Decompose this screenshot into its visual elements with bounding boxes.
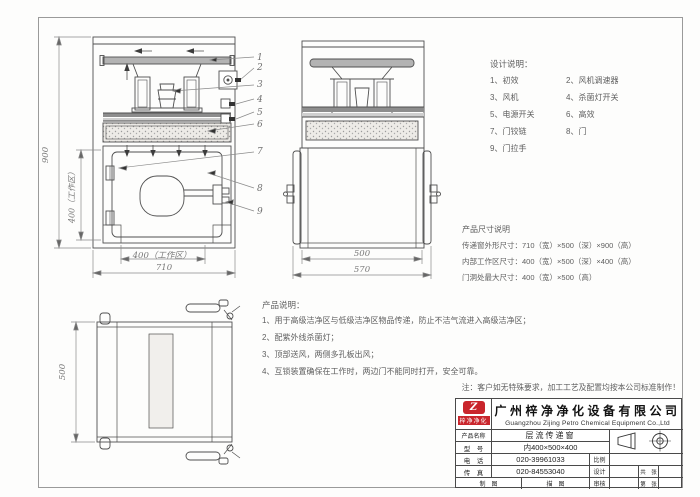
dim-front-height: 900 xyxy=(41,140,53,170)
projection-symbol xyxy=(610,430,682,452)
top-view-dimensions xyxy=(71,322,95,442)
company-cell: 广州梓净净化设备有限公司 Guangzhou Zijing Petro Chem… xyxy=(491,399,683,429)
callout-8: 8 xyxy=(257,184,263,194)
product-label: 产品名称 xyxy=(456,429,491,441)
product-note-line: 4、互锁装置确保在工作时，两边门不能同时打开，安全可靠。 xyxy=(262,368,530,385)
callout-4: 4 xyxy=(257,95,263,105)
product-notes-title: 产品说明： xyxy=(262,301,530,310)
callout-1: 1 xyxy=(257,53,263,63)
sheetno-label: 第 张 xyxy=(638,477,658,489)
side-view xyxy=(284,41,441,248)
product-notes: 产品说明： 1、用于高级洁净区与低级洁净区物品传递，防止不洁气流进入高级洁净区；… xyxy=(262,301,530,385)
engineering-drawing-sheet: 900 400（工作区） 400（工作区） 710 500 570 500 1 … xyxy=(0,0,700,497)
size-note-line: 传递窗外形尺寸：710（宽）×500（深）×900（高） xyxy=(462,242,636,258)
sheetno-value-empty xyxy=(658,477,683,489)
dim-front-inner-width: 400（工作区） xyxy=(112,249,212,261)
design-notes: 设计说明： 1、初效 3、风机 5、电源开关 7、门铰链 9、门拉手 2、风机调… xyxy=(490,60,618,162)
design-notes-left-column: 1、初效 3、风机 5、电源开关 7、门铰链 9、门拉手 xyxy=(490,77,566,162)
logo-text: 梓净净化 xyxy=(458,416,490,425)
top-view xyxy=(97,300,240,464)
sheets-label: 共 张 xyxy=(638,465,658,477)
title-block: Z 梓净净化 广州梓净净化设备有限公司 Guangzhou Zijing Pet… xyxy=(455,398,682,488)
scale-label: 比例 xyxy=(589,453,609,465)
dim-front-width: 710 xyxy=(134,263,194,273)
check-label: 审核 xyxy=(589,477,609,489)
product-value: 层流传递窗 xyxy=(491,429,609,441)
model-value: 内400×500×400 xyxy=(491,441,609,453)
check-value-empty xyxy=(609,477,638,489)
sheets-value-empty xyxy=(658,465,683,477)
product-note-line: 1、用于高级洁净区与低级洁净区物品传递，防止不洁气流进入高级洁净区； xyxy=(262,317,530,334)
size-notes-title: 产品尺寸说明 xyxy=(462,226,636,234)
dim-side-outer-width: 570 xyxy=(332,265,392,275)
callout-6: 6 xyxy=(257,120,263,130)
size-note-line: 门洞处最大尺寸：400（宽）×500（高） xyxy=(462,274,636,290)
design-note-item: 8、门 xyxy=(566,128,618,145)
callout-2: 2 xyxy=(257,63,263,73)
draft-label: 制 图 xyxy=(456,477,521,489)
footnote: 注：客户如无特殊要求，加工工艺及配置均按本公司标准制作！ xyxy=(452,384,680,392)
model-label: 型 号 xyxy=(456,441,491,453)
logo-glyph: Z xyxy=(470,402,477,413)
design-value-empty xyxy=(609,465,638,477)
product-note-line: 2、配紫外线杀菌灯； xyxy=(262,334,530,351)
tel-value: 020-39961033 xyxy=(491,453,589,465)
design-note-item: 4、杀菌灯开关 xyxy=(566,94,618,111)
trace-label: 描 图 xyxy=(521,477,589,489)
fax-label: 传 真 xyxy=(456,465,491,477)
design-note-item: 3、风机 xyxy=(490,94,566,111)
callout-9: 9 xyxy=(257,207,263,217)
projection-symbol-cell xyxy=(609,429,683,453)
fax-value: 020-84553040 xyxy=(491,465,589,477)
callout-3: 3 xyxy=(257,80,263,90)
design-note-item: 5、电源开关 xyxy=(490,111,566,128)
company-name-cn: 广州梓净净化设备有限公司 xyxy=(494,402,680,419)
company-name-en: Guangzhou Zijing Petro Chemical Equipmen… xyxy=(505,420,670,427)
logo-cell: Z 梓净净化 xyxy=(456,399,491,429)
design-note-item: 9、门拉手 xyxy=(490,145,566,162)
tel-label: 电 话 xyxy=(456,453,491,465)
design-note-item: 2、风机调速器 xyxy=(566,77,618,94)
dim-side-inner-width: 500 xyxy=(332,249,392,259)
design-label: 设计 xyxy=(589,465,609,477)
callout-7: 7 xyxy=(257,147,263,157)
design-note-item: 6、高效 xyxy=(566,111,618,128)
design-note-item: 7、门铰链 xyxy=(490,128,566,145)
dim-top-depth: 500 xyxy=(58,337,70,407)
dim-front-inner-height: 400（工作区） xyxy=(67,161,78,231)
company-logo: Z xyxy=(463,401,485,414)
callout-5: 5 xyxy=(257,108,263,118)
front-view xyxy=(93,37,237,248)
size-note-line: 内部工作区尺寸：400（宽）×500（深）×400（高） xyxy=(462,258,636,274)
size-notes: 产品尺寸说明 传递窗外形尺寸：710（宽）×500（深）×900（高） 内部工作… xyxy=(462,226,636,290)
product-note-line: 3、顶部送风，两侧多孔板出风； xyxy=(262,351,530,368)
design-notes-title: 设计说明： xyxy=(490,60,618,69)
scale-value-empty xyxy=(609,453,683,465)
design-note-item: 1、初效 xyxy=(490,77,566,94)
design-notes-right-column: 2、风机调速器 4、杀菌灯开关 6、高效 8、门 xyxy=(566,77,618,162)
